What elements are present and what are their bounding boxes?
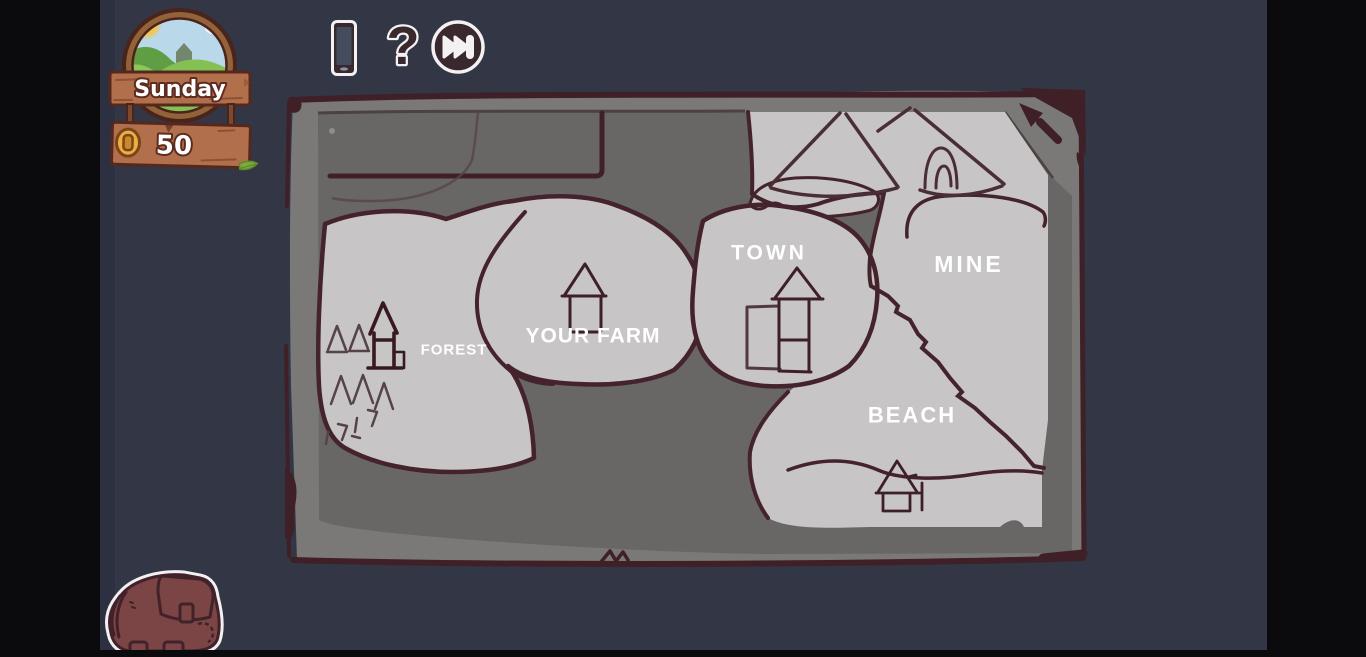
help-glyph[interactable]: ? [387,17,420,76]
letterbox-right [1267,0,1366,657]
region-label-your-farm[interactable]: YOUR FARM [526,325,661,348]
region-label-mine[interactable]: MINE [934,251,1004,277]
region-label-beach[interactable]: BEACH [868,403,956,428]
day-panel: Sunday 50 [106,2,266,184]
coin-icon [116,129,140,157]
inner-frame-line [318,111,745,113]
letterbox-bottom [0,650,1366,657]
backpack-icon[interactable] [100,560,224,657]
region-label-forest[interactable]: FOREST [421,342,488,359]
region-town[interactable] [692,205,877,387]
help-icon[interactable]: ? [384,17,422,79]
money-value: 50 [155,130,192,161]
day-label: Sunday [134,77,225,102]
rope-right [228,104,234,125]
day-sign: Sunday [110,72,250,105]
money-sign: 50 [111,122,250,168]
skip-forward-icon[interactable] [430,19,486,75]
game-screen: FOREST YOUR FARM TOWN MINE BEACH [0,0,1366,657]
map-dot [329,128,335,134]
letterbox-left [0,0,100,657]
tablet-icon[interactable] [330,19,358,77]
region-label-town[interactable]: TOWN [731,242,807,265]
world-map: FOREST YOUR FARM TOWN MINE BEACH [283,86,1089,574]
